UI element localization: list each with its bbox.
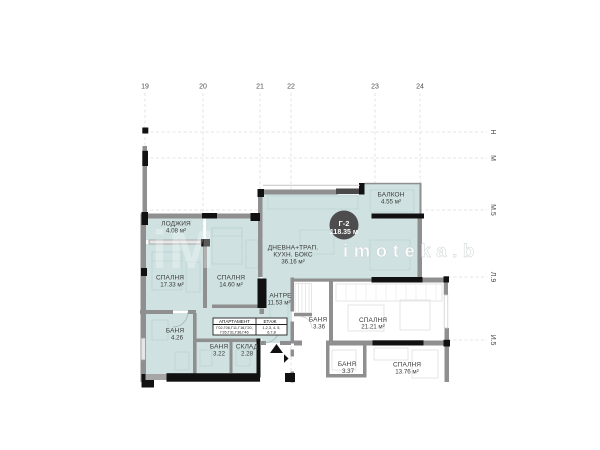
svg-text:АПАРТАМЕНТ: АПАРТАМЕНТ — [219, 319, 250, 324]
svg-text:Г02,Г06,Г11,Г16,Г20,: Г02,Г06,Г11,Г16,Г20, — [216, 326, 252, 330]
svg-text:2.28: 2.28 — [241, 351, 254, 358]
svg-text:22: 22 — [287, 84, 295, 91]
svg-text:24: 24 — [416, 84, 424, 91]
svg-text:3.22: 3.22 — [213, 351, 226, 358]
svg-text:БАНЯ: БАНЯ — [210, 344, 228, 351]
svg-text:23: 23 — [371, 84, 379, 91]
svg-text:1,2,3, 4, 5,: 1,2,3, 4, 5, — [263, 326, 281, 330]
svg-text:И.5: И.5 — [489, 335, 496, 346]
svg-text:СПАЛНЯ: СПАЛНЯ — [156, 275, 184, 282]
svg-text:6,7,8: 6,7,8 — [267, 331, 275, 335]
svg-text:4.26: 4.26 — [171, 335, 184, 342]
svg-text:Н: Н — [489, 129, 496, 134]
svg-text:Г26,Г31,Г36,Г46: Г26,Г31,Г36,Г46 — [220, 331, 248, 335]
svg-text:М.5: М.5 — [489, 204, 496, 216]
svg-text:4.55 м²: 4.55 м² — [381, 199, 401, 206]
svg-text:11.53 м²: 11.53 м² — [267, 300, 290, 307]
svg-text:СПАЛНЯ: СПАЛНЯ — [393, 362, 421, 369]
svg-text:36.16 м²: 36.16 м² — [281, 259, 305, 266]
svg-text:118.35 м: 118.35 м — [330, 229, 358, 236]
svg-text:БАЛКОН: БАЛКОН — [378, 192, 405, 199]
svg-text:Л.9: Л.9 — [489, 272, 496, 283]
svg-text:4.08 м²: 4.08 м² — [166, 228, 186, 235]
svg-text:imoteka.b: imoteka.b — [343, 240, 480, 261]
svg-text:19: 19 — [141, 84, 149, 91]
svg-text:ЛОДЖИЯ: ЛОДЖИЯ — [161, 221, 191, 228]
svg-text:14.60 м²: 14.60 м² — [219, 282, 243, 289]
svg-text:Г-2: Г-2 — [339, 219, 350, 228]
svg-text:20: 20 — [199, 84, 207, 91]
svg-text:3.37: 3.37 — [342, 368, 355, 375]
svg-text:13.76 м²: 13.76 м² — [395, 369, 419, 376]
svg-text:СПАЛНЯ: СПАЛНЯ — [217, 275, 245, 282]
svg-text:3.36: 3.36 — [313, 324, 326, 331]
svg-text:БАНЯ: БАНЯ — [166, 328, 184, 335]
svg-text:АНТРЕ: АНТРЕ — [269, 293, 292, 300]
svg-text:М: М — [489, 155, 496, 161]
svg-text:21.21 м²: 21.21 м² — [361, 324, 385, 331]
svg-text:ДНЕВНА+ТРАП.: ДНЕВНА+ТРАП. — [268, 245, 318, 252]
svg-text:СКЛАД: СКЛАД — [236, 344, 259, 351]
svg-text:17.33 м²: 17.33 м² — [160, 282, 184, 289]
svg-text:КУХН. БОКС: КУХН. БОКС — [273, 252, 312, 259]
svg-text:БАНЯ: БАНЯ — [309, 317, 327, 324]
svg-text:ЕТАЖ: ЕТАЖ — [263, 319, 277, 324]
svg-text:21: 21 — [256, 84, 264, 91]
